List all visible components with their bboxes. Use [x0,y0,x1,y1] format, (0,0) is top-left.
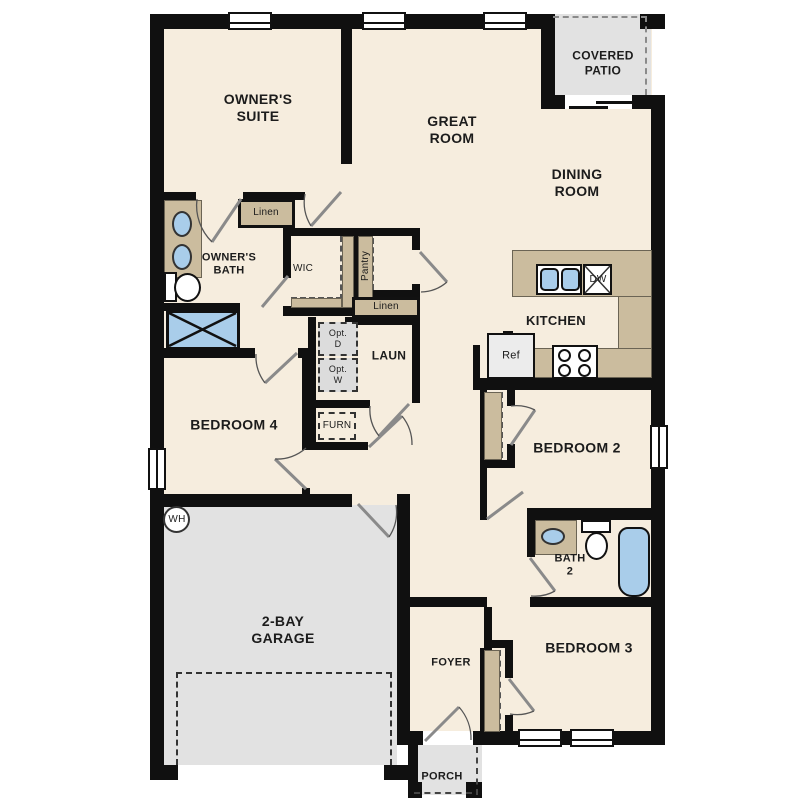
door-leaf-wic [262,276,288,307]
label-bedroom4: BEDROOM 4 [190,416,278,433]
label-porch: PORCH [421,770,462,783]
label-refrigerator: Ref [502,349,520,362]
door-arc-laundry [370,406,379,436]
door-leaf-bedroom4-b [275,459,306,489]
door-leaf-owners-suite [311,192,341,226]
door-leaf-hall-nook [487,492,523,519]
door-leaf-bedroom2 [511,410,535,445]
floor-plan: OWNER'S SUITE GREAT ROOM COVERED PATIO D… [0,0,810,810]
door-arc-furnace [402,416,412,445]
door-leaf-front [425,707,459,741]
label-kitchen: KITCHEN [526,313,586,329]
door-swing-layer [0,0,810,810]
label-bath2: BATH 2 [555,553,586,580]
label-wic: WIC [293,263,313,275]
label-owners-bath: OWNER'S BATH [202,252,256,279]
label-foyer: FOYER [431,656,470,669]
label-opt-w: Opt. W [329,364,347,386]
shower-x-mark [169,313,236,346]
label-covered-patio: COVERED PATIO [572,48,633,77]
label-opt-d: Opt. D [329,328,347,350]
label-owners-suite: OWNER'S SUITE [224,91,292,125]
door-leaf-garage-entry [358,504,389,537]
label-garage: 2-BAY GARAGE [251,613,314,647]
door-arc-bedroom3 [510,711,534,715]
door-arc-pantry [421,282,447,292]
label-great-room: GREAT ROOM [427,113,476,147]
label-dishwasher: DW [589,274,606,286]
door-leaf-owners-bath [212,199,241,242]
door-leaf-furnace [369,416,402,447]
label-water-heater: WH [168,514,185,526]
door-arc-bedroom4-a [256,354,265,383]
door-arc-bath2 [531,591,555,596]
label-dining-room: DINING ROOM [552,166,603,200]
label-bedroom3: BEDROOM 3 [545,639,633,656]
door-leaf-bedroom3 [509,679,534,711]
door-leaf-bath2 [530,558,555,591]
label-laundry: LAUN [372,349,407,364]
door-arc-owners-bath [197,199,212,242]
label-furnace: FURN [323,420,352,432]
label-linen-lower: Linen [373,301,398,313]
door-arc-owners-suite [304,194,311,226]
door-leaf-bedroom4-a [265,353,297,383]
door-arc-bedroom4-b [275,448,306,459]
door-arc-garage [389,505,397,537]
door-arc-bedroom2 [511,406,535,410]
label-bedroom2: BEDROOM 2 [533,439,621,456]
door-leaf-pantry [420,252,447,282]
label-linen-upper: Linen [253,207,278,219]
door-arc-front [459,707,471,740]
label-pantry: Pantry [360,251,372,281]
